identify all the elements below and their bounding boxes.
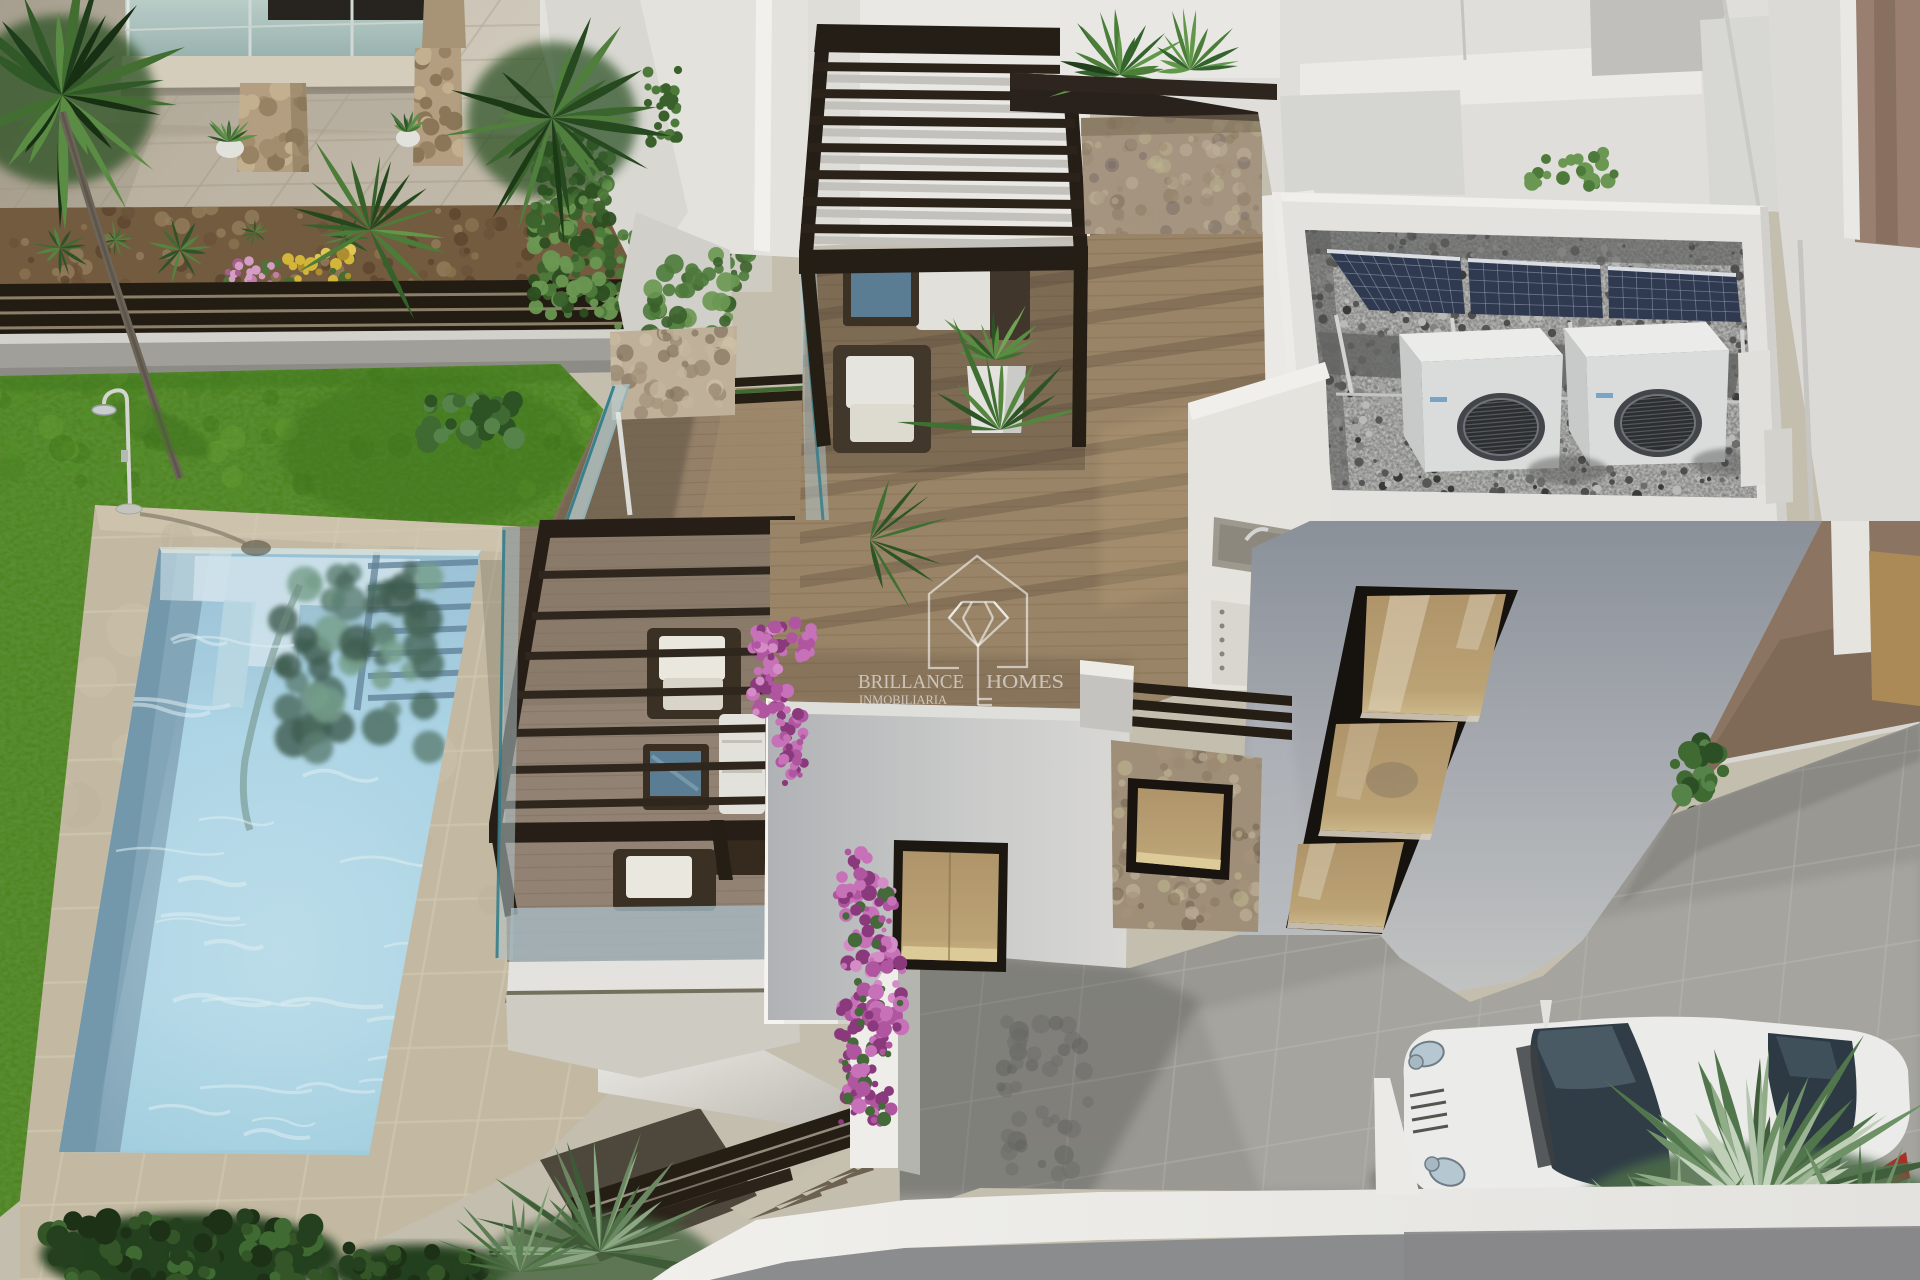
svg-text:BRILLANCE: BRILLANCE [858, 671, 964, 693]
svg-text:INMOBILIARIA: INMOBILIARIA [859, 693, 947, 707]
svg-text:HOMES: HOMES [986, 671, 1064, 693]
